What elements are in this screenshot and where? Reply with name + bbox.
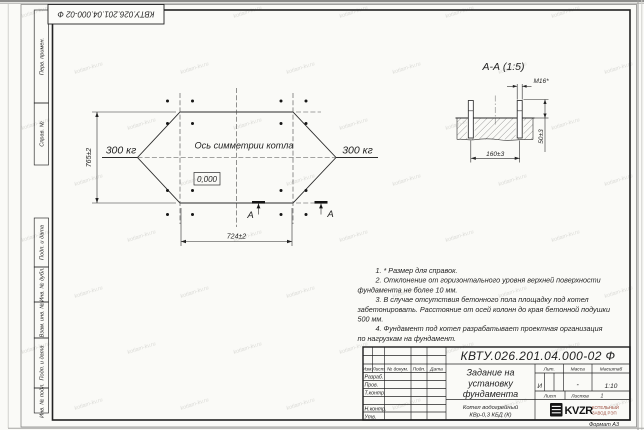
watermark-text: kotlam-kv.ru (74, 61, 104, 76)
watermark-text: kotlam-kv.ru (127, 229, 157, 244)
scale-header: Масштаб (600, 367, 623, 373)
col-header-izm: Изм. (363, 367, 373, 373)
watermark-text: kotlam-kv.ru (180, 397, 210, 412)
note-line: забетонировать. Расстояние от осей колон… (357, 305, 610, 314)
note-line: 3. В случае отсутствия бетонного пола пл… (376, 295, 589, 304)
rotated-doc-stamp: КВТУ.026.201.04.000-02 Ф (48, 5, 164, 25)
doc-number: КВТУ.026.201.04.000-02 Ф (461, 349, 616, 363)
watermark-text: kotlam-kv.ru (127, 341, 157, 356)
note-line: фундамента не более 10 мм. (358, 285, 458, 294)
col-header-list: Лист (371, 367, 384, 373)
watermark-text: kotlam-kv.ru (286, 285, 316, 300)
watermark-text: kotlam-kv.ru (551, 117, 581, 132)
section-cut-marks: А А (246, 202, 333, 221)
lit-value: И (537, 383, 542, 390)
watermark-text: kotlam-kv.ru (286, 61, 316, 76)
margin-stamp-label: Инв. № подл. (39, 383, 45, 418)
watermark-text: kotlam-kv.ru (74, 285, 104, 300)
foundation-plan: 765±2 724±2 300 кг 300 кг Ось симметрии … (86, 88, 378, 246)
watermark-text: kotlam-kv.ru (551, 229, 581, 244)
section-title: А-А (1:5) (481, 61, 524, 73)
col-header-dokum: № докум. (387, 367, 408, 373)
sheet-label: Лист (543, 393, 556, 399)
row-label-utv: Утв. (365, 414, 377, 420)
watermark-text: kotlam-kv.ru (180, 61, 210, 76)
mass-value: - (577, 382, 580, 389)
drawing-title-line: фундамента (463, 389, 518, 399)
drawing-sheet: kotlam-kv.rukotlam-kv.rukotlam-kv.rukotl… (0, 0, 644, 430)
manufacturer-logo: KVZR КОТЕЛЬНЫЙ ЗАВОД РЭП (550, 403, 619, 417)
col-header-data: Дата (429, 367, 443, 373)
drawing-title-line: установку (467, 379, 513, 389)
elevation-value: 0,000 (197, 175, 218, 184)
watermark-text: kotlam-kv.ru (21, 5, 51, 20)
section-letter-right: А (326, 209, 333, 220)
watermark-text: kotlam-kv.ru (551, 5, 581, 20)
watermark-text: kotlam-kv.ru (286, 173, 316, 188)
note-line: 4. Фундамент под котел разрабатывает про… (376, 324, 603, 333)
margin-stamp-label: Подп. и дата (39, 225, 45, 260)
product-line: КВр-0,3 КБД (К) (469, 413, 511, 419)
anchor-stud-left (467, 101, 475, 139)
watermark-text: kotlam-kv.ru (339, 117, 369, 132)
watermark-text: kotlam-kv.ru (21, 229, 51, 244)
lit-header: Лит. (543, 367, 555, 373)
watermark-text: kotlam-kv.ru (74, 397, 104, 412)
watermark-text: kotlam-kv.ru (74, 173, 104, 188)
format-label: Формат А3 (589, 422, 620, 428)
watermark-text: kotlam-kv.ru (392, 173, 422, 188)
margin-stamp-label: Справ. № (39, 121, 45, 146)
drawing-sheet-svg: kotlam-kv.rukotlam-kv.rukotlam-kv.rukotl… (0, 0, 644, 430)
logo-caption-line: ЗАВОД РЭП (592, 411, 617, 416)
logo-text: KVZR (565, 405, 594, 417)
axis-label: Ось симметрии котла (194, 141, 293, 151)
dim-width-text: 724±2 (227, 234, 247, 241)
margin-stamp-label: Подп. и дата (39, 345, 45, 380)
dim-protrusion-text: 50±3 (538, 129, 545, 144)
watermark-text: kotlam-kv.ru (233, 341, 263, 356)
row-label-nkontr: Н.контр. (365, 407, 387, 413)
watermark-text: kotlam-kv.ru (233, 117, 263, 132)
note-line: 1. * Размер для справок. (376, 266, 458, 275)
title-block: КВТУ.026.201.04.000-02 Ф Изм. Лист № док… (363, 347, 630, 420)
dimension-spacing: 160±3 (471, 141, 520, 163)
dimension-thread: М16* (507, 78, 549, 100)
technical-notes: 1. * Размер для справок. 2. Отклонение о… (357, 266, 610, 343)
margin-stamp-label: Инв. № дубл. (39, 267, 45, 301)
sheets-value: 1 (601, 393, 604, 399)
load-left-label: 300 кг (106, 145, 137, 157)
logo-caption-line: КОТЕЛЬНЫЙ (592, 405, 619, 410)
watermark-text: kotlam-kv.ru (498, 173, 528, 188)
row-label-prov: Пров. (365, 383, 379, 389)
section-view: А-А (1:5) М16* (456, 61, 550, 163)
watermark-text: kotlam-kv.ru (127, 117, 157, 132)
thread-label: М16* (534, 78, 550, 85)
rotated-doc-number: КВТУ.026.201.04.000-02 Ф (57, 9, 155, 18)
dim-spacing-text: 160±3 (486, 151, 504, 158)
watermark-text: kotlam-kv.ru (180, 285, 210, 300)
drawing-title-line: Задание на (467, 368, 515, 378)
dim-height-text: 765±2 (86, 148, 93, 168)
watermark-text: kotlam-kv.ru (339, 341, 369, 356)
margin-stamps: Перв. примен. Справ. № Подп. и дата Инв.… (34, 10, 48, 418)
note-line: 2. Отклонение от горизонтального уровня … (375, 276, 601, 285)
note-line: по нагрузкам на фундамент. (358, 334, 457, 343)
section-letter-left: А (246, 210, 253, 221)
watermark-text: kotlam-kv.ru (339, 229, 369, 244)
row-label-razrab: Разраб. (365, 375, 384, 381)
product-line: Котел водогрейный (463, 404, 519, 411)
watermark-text: kotlam-kv.ru (445, 5, 475, 20)
watermark-text: kotlam-kv.ru (392, 61, 422, 76)
margin-stamp-label: Взам. инв. № (39, 303, 45, 338)
watermark-text: kotlam-kv.ru (233, 5, 263, 20)
margin-stamp-label: Перв. примен. (39, 38, 45, 75)
anchor-stud-right (516, 101, 524, 139)
load-right-label: 300 кг (342, 145, 373, 157)
sheets-label: Листов (570, 393, 589, 399)
row-label-tkontr: Т.контр. (365, 391, 386, 397)
scale-value: 1:10 (605, 383, 618, 390)
note-line: 500 мм. (358, 315, 384, 324)
watermark-text: kotlam-kv.ru (286, 397, 316, 412)
elevation-mark: 0,000 (194, 173, 220, 186)
watermark-text: kotlam-kv.ru (21, 117, 51, 132)
watermark-text: kotlam-kv.ru (339, 5, 369, 20)
watermark-text: kotlam-kv.ru (445, 229, 475, 244)
col-header-podp: Подп. (413, 367, 426, 373)
watermark-text: kotlam-kv.ru (21, 341, 51, 356)
mass-header: Масса (571, 367, 586, 373)
